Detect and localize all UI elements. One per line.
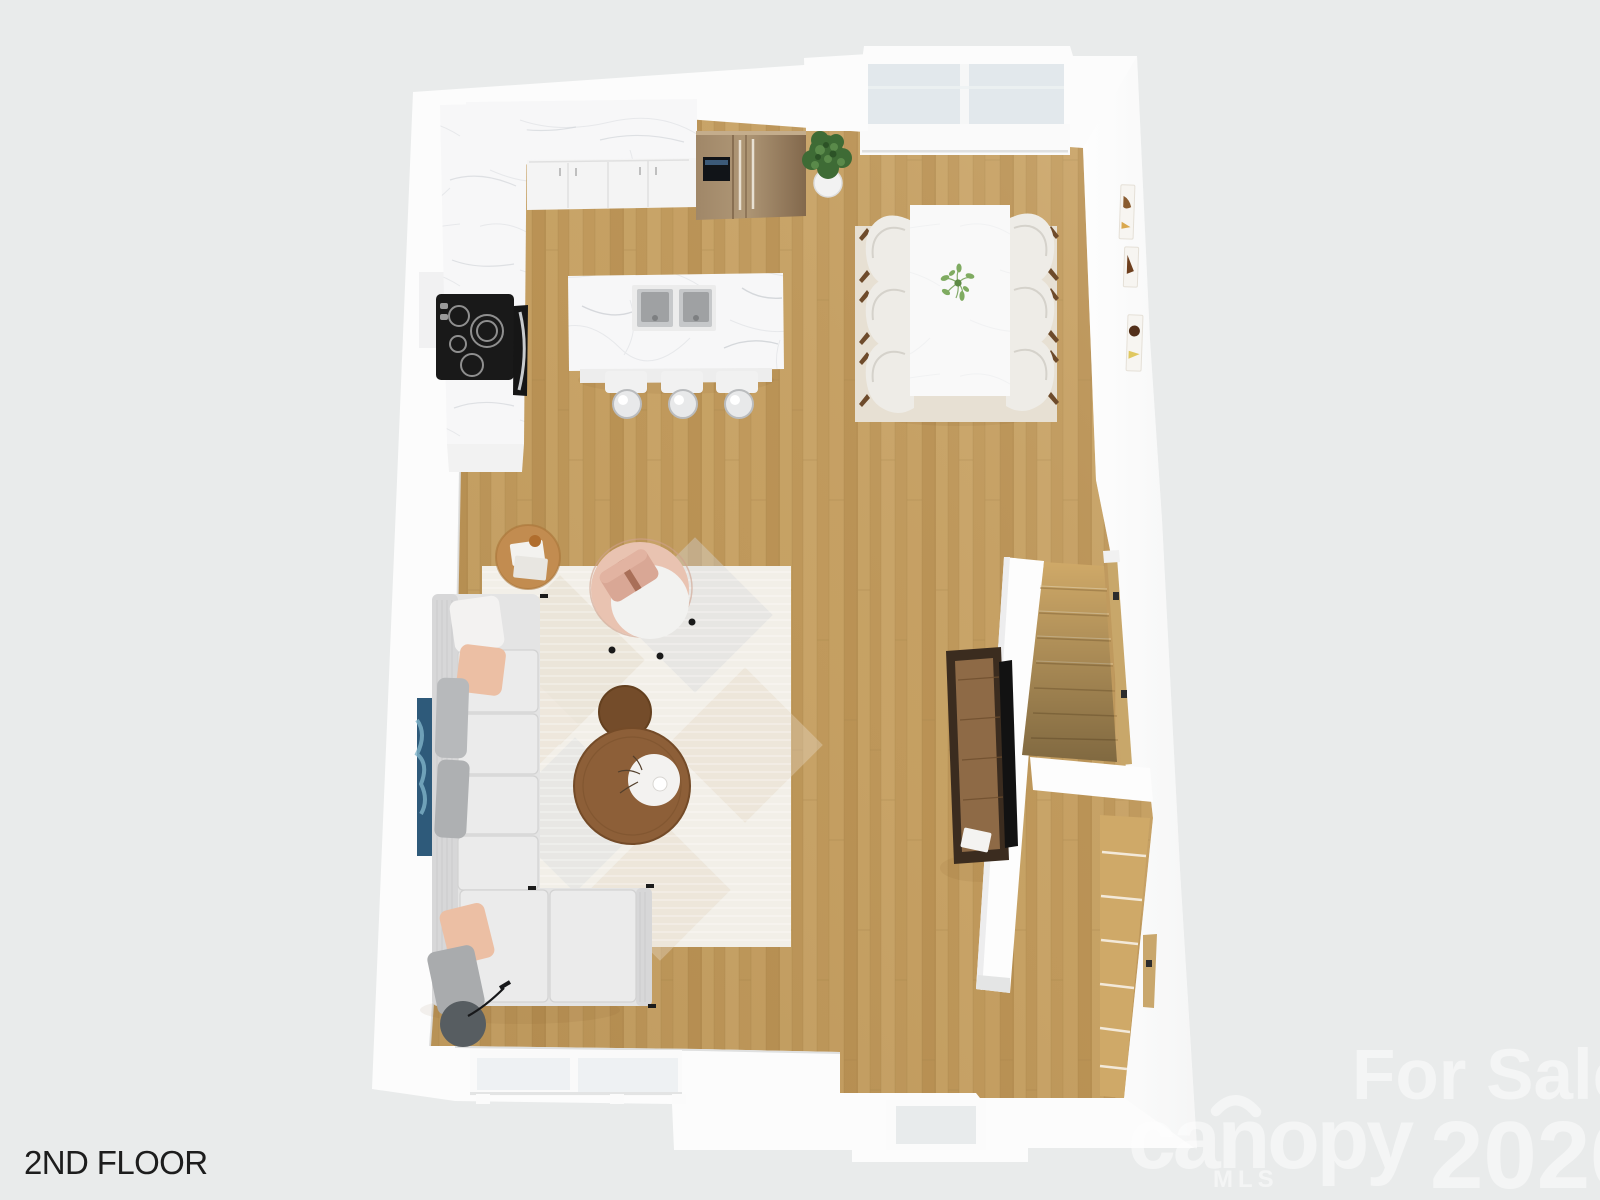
svg-text:2ND FLOOR: 2ND FLOOR [24,1144,207,1181]
svg-text:2026: 2026 [1430,1102,1600,1200]
svg-text:MLS: MLS [1213,1166,1279,1193]
